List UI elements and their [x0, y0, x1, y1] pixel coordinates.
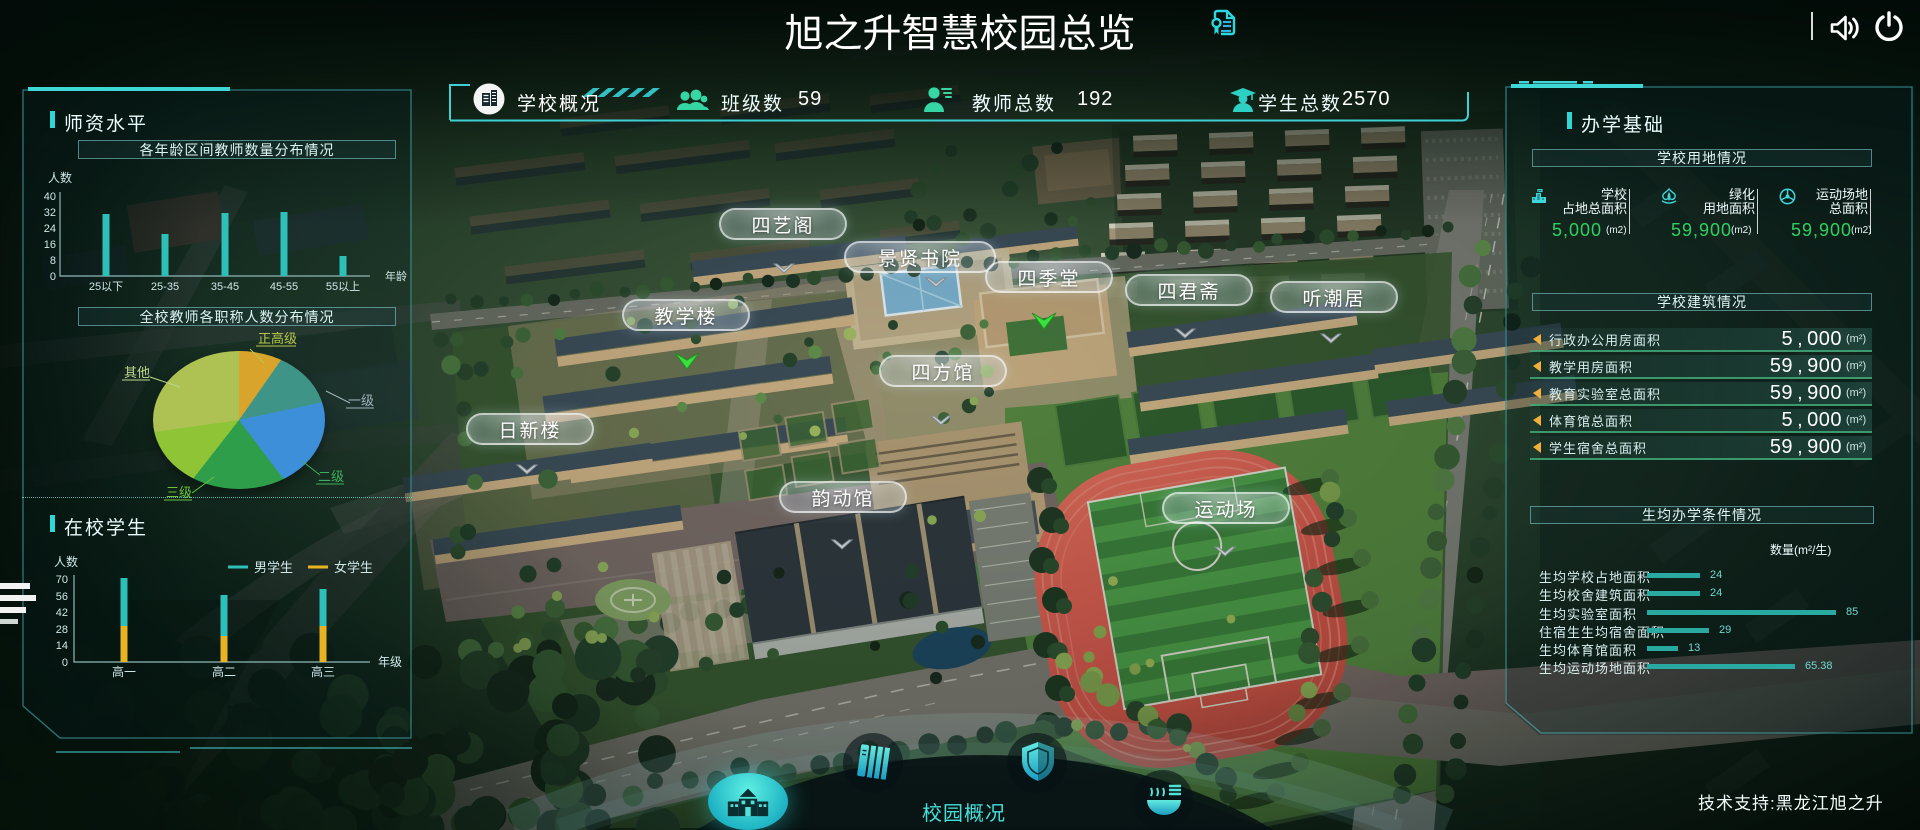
svg-text:28: 28 — [56, 624, 68, 636]
svg-text:二级: 二级 — [318, 469, 344, 484]
svg-text:8: 8 — [50, 255, 56, 267]
svg-text:一级: 一级 — [348, 393, 374, 408]
svg-text:16: 16 — [44, 239, 56, 251]
svg-text:25-35: 25-35 — [151, 281, 179, 293]
svg-text:其他: 其他 — [124, 365, 150, 380]
svg-text:高一: 高一 — [112, 664, 136, 679]
svg-text:年级: 年级 — [378, 655, 402, 669]
svg-text:70: 70 — [56, 574, 68, 586]
svg-text:人数: 人数 — [54, 554, 78, 569]
svg-text:25以下: 25以下 — [89, 281, 123, 293]
svg-text:高二: 高二 — [212, 664, 236, 679]
svg-text:14: 14 — [56, 640, 68, 652]
svg-text:35-45: 35-45 — [211, 281, 239, 293]
svg-text:0: 0 — [62, 657, 68, 669]
svg-text:女学生: 女学生 — [334, 560, 373, 575]
svg-text:45-55: 45-55 — [270, 281, 298, 293]
svg-text:正高级: 正高级 — [258, 331, 297, 346]
svg-text:32: 32 — [44, 207, 56, 219]
svg-text:高三: 高三 — [311, 664, 335, 679]
svg-text:年龄: 年龄 — [385, 269, 407, 283]
svg-text:56: 56 — [56, 591, 68, 603]
svg-text:0: 0 — [50, 271, 56, 283]
svg-text:人数: 人数 — [48, 170, 72, 185]
svg-text:55以上: 55以上 — [326, 280, 360, 293]
svg-text:40: 40 — [44, 191, 56, 203]
svg-text:男学生: 男学生 — [254, 560, 293, 575]
svg-text:42: 42 — [56, 607, 68, 619]
svg-text:24: 24 — [44, 223, 56, 235]
